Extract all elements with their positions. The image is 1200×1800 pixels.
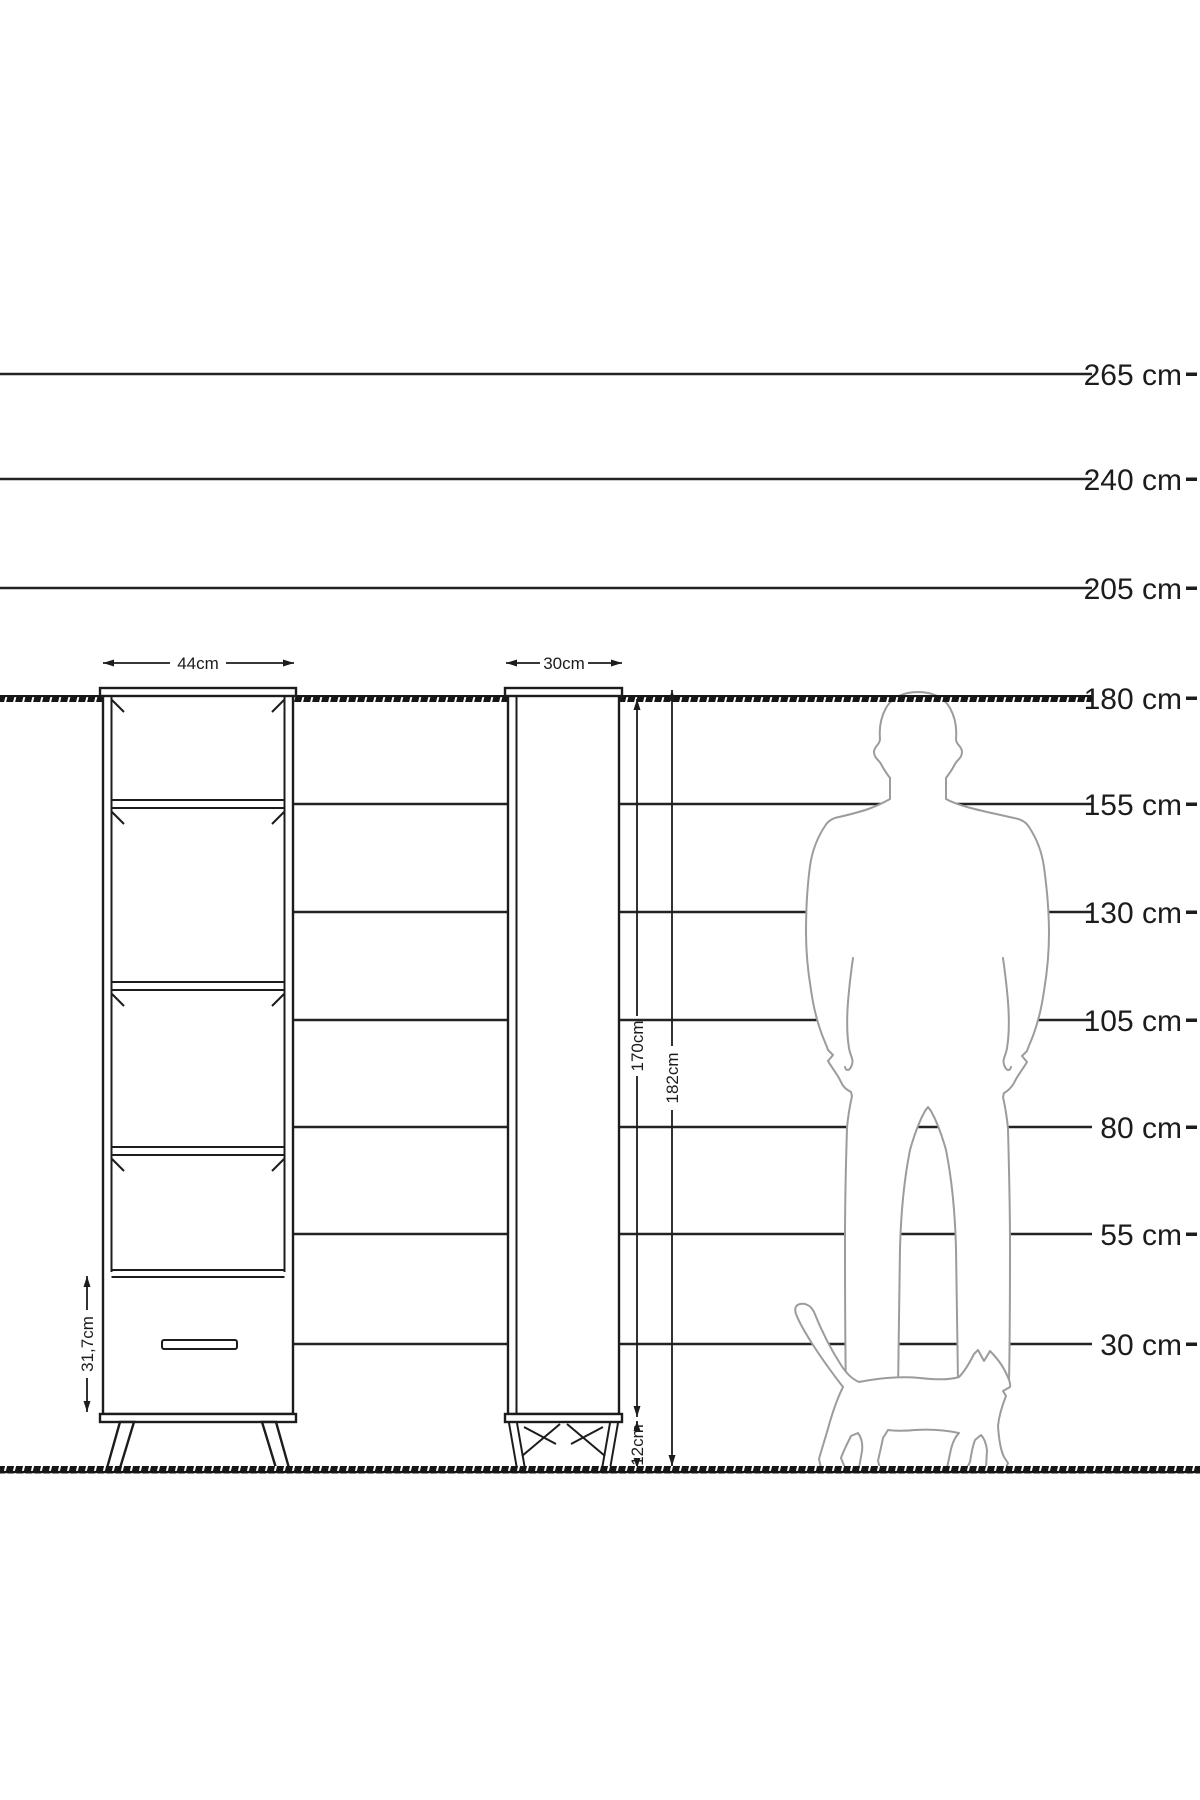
body-height-dimension: 170cm — [628, 699, 647, 1417]
total-height-dimension: 182cm — [663, 690, 682, 1466]
man-silhouette — [806, 692, 1049, 1391]
bookshelf-side-view: 30cm 170cm 182cm 12cm — [505, 654, 682, 1469]
scale-label-55: 55 cm — [1100, 1219, 1182, 1252]
scale-label-30: 30 cm — [1100, 1329, 1182, 1362]
side-depth-dimension: 30cm — [506, 654, 622, 673]
front-left-leg — [107, 1422, 134, 1468]
front-body — [103, 694, 293, 1414]
furniture-dimension-diagram: 44cm 31,7cm — [0, 0, 1200, 1800]
scale-label-105: 105 cm — [1084, 1005, 1182, 1038]
ground-line-hatched — [0, 1466, 1200, 1474]
leg-height-label: 12cm — [628, 1424, 647, 1466]
drawer-height-dimension: 31,7cm — [78, 1276, 97, 1412]
drawer-height-label: 31,7cm — [78, 1316, 97, 1372]
scale-label-180: 180 cm — [1084, 683, 1182, 716]
front-right-leg — [262, 1422, 289, 1468]
side-legs — [509, 1423, 618, 1469]
scale-label-155: 155 cm — [1084, 789, 1182, 822]
leg-height-dimension: 12cm — [628, 1421, 647, 1468]
scale-label-205: 205 cm — [1084, 573, 1182, 606]
bookshelf-front-view: 44cm 31,7cm — [78, 654, 296, 1468]
scale-label-240: 240 cm — [1084, 464, 1182, 497]
scale-label-80: 80 cm — [1100, 1112, 1182, 1145]
scale-label-265: 265 cm — [1084, 359, 1182, 392]
front-width-label: 44cm — [177, 654, 219, 673]
side-depth-label: 30cm — [543, 654, 585, 673]
side-bottom-board — [505, 1414, 622, 1422]
body-height-label: 170cm — [628, 1020, 647, 1071]
side-body — [508, 694, 619, 1414]
height-scale-labels: 265 cm 240 cm 205 cm 180 cm 155 cm 130 c… — [1084, 359, 1197, 1362]
total-height-label: 182cm — [663, 1052, 682, 1103]
scale-label-ticks — [1186, 373, 1197, 1347]
front-top-board — [100, 688, 296, 696]
side-top-board — [505, 688, 622, 696]
scale-label-130: 130 cm — [1084, 897, 1182, 930]
front-width-dimension: 44cm — [103, 654, 294, 673]
